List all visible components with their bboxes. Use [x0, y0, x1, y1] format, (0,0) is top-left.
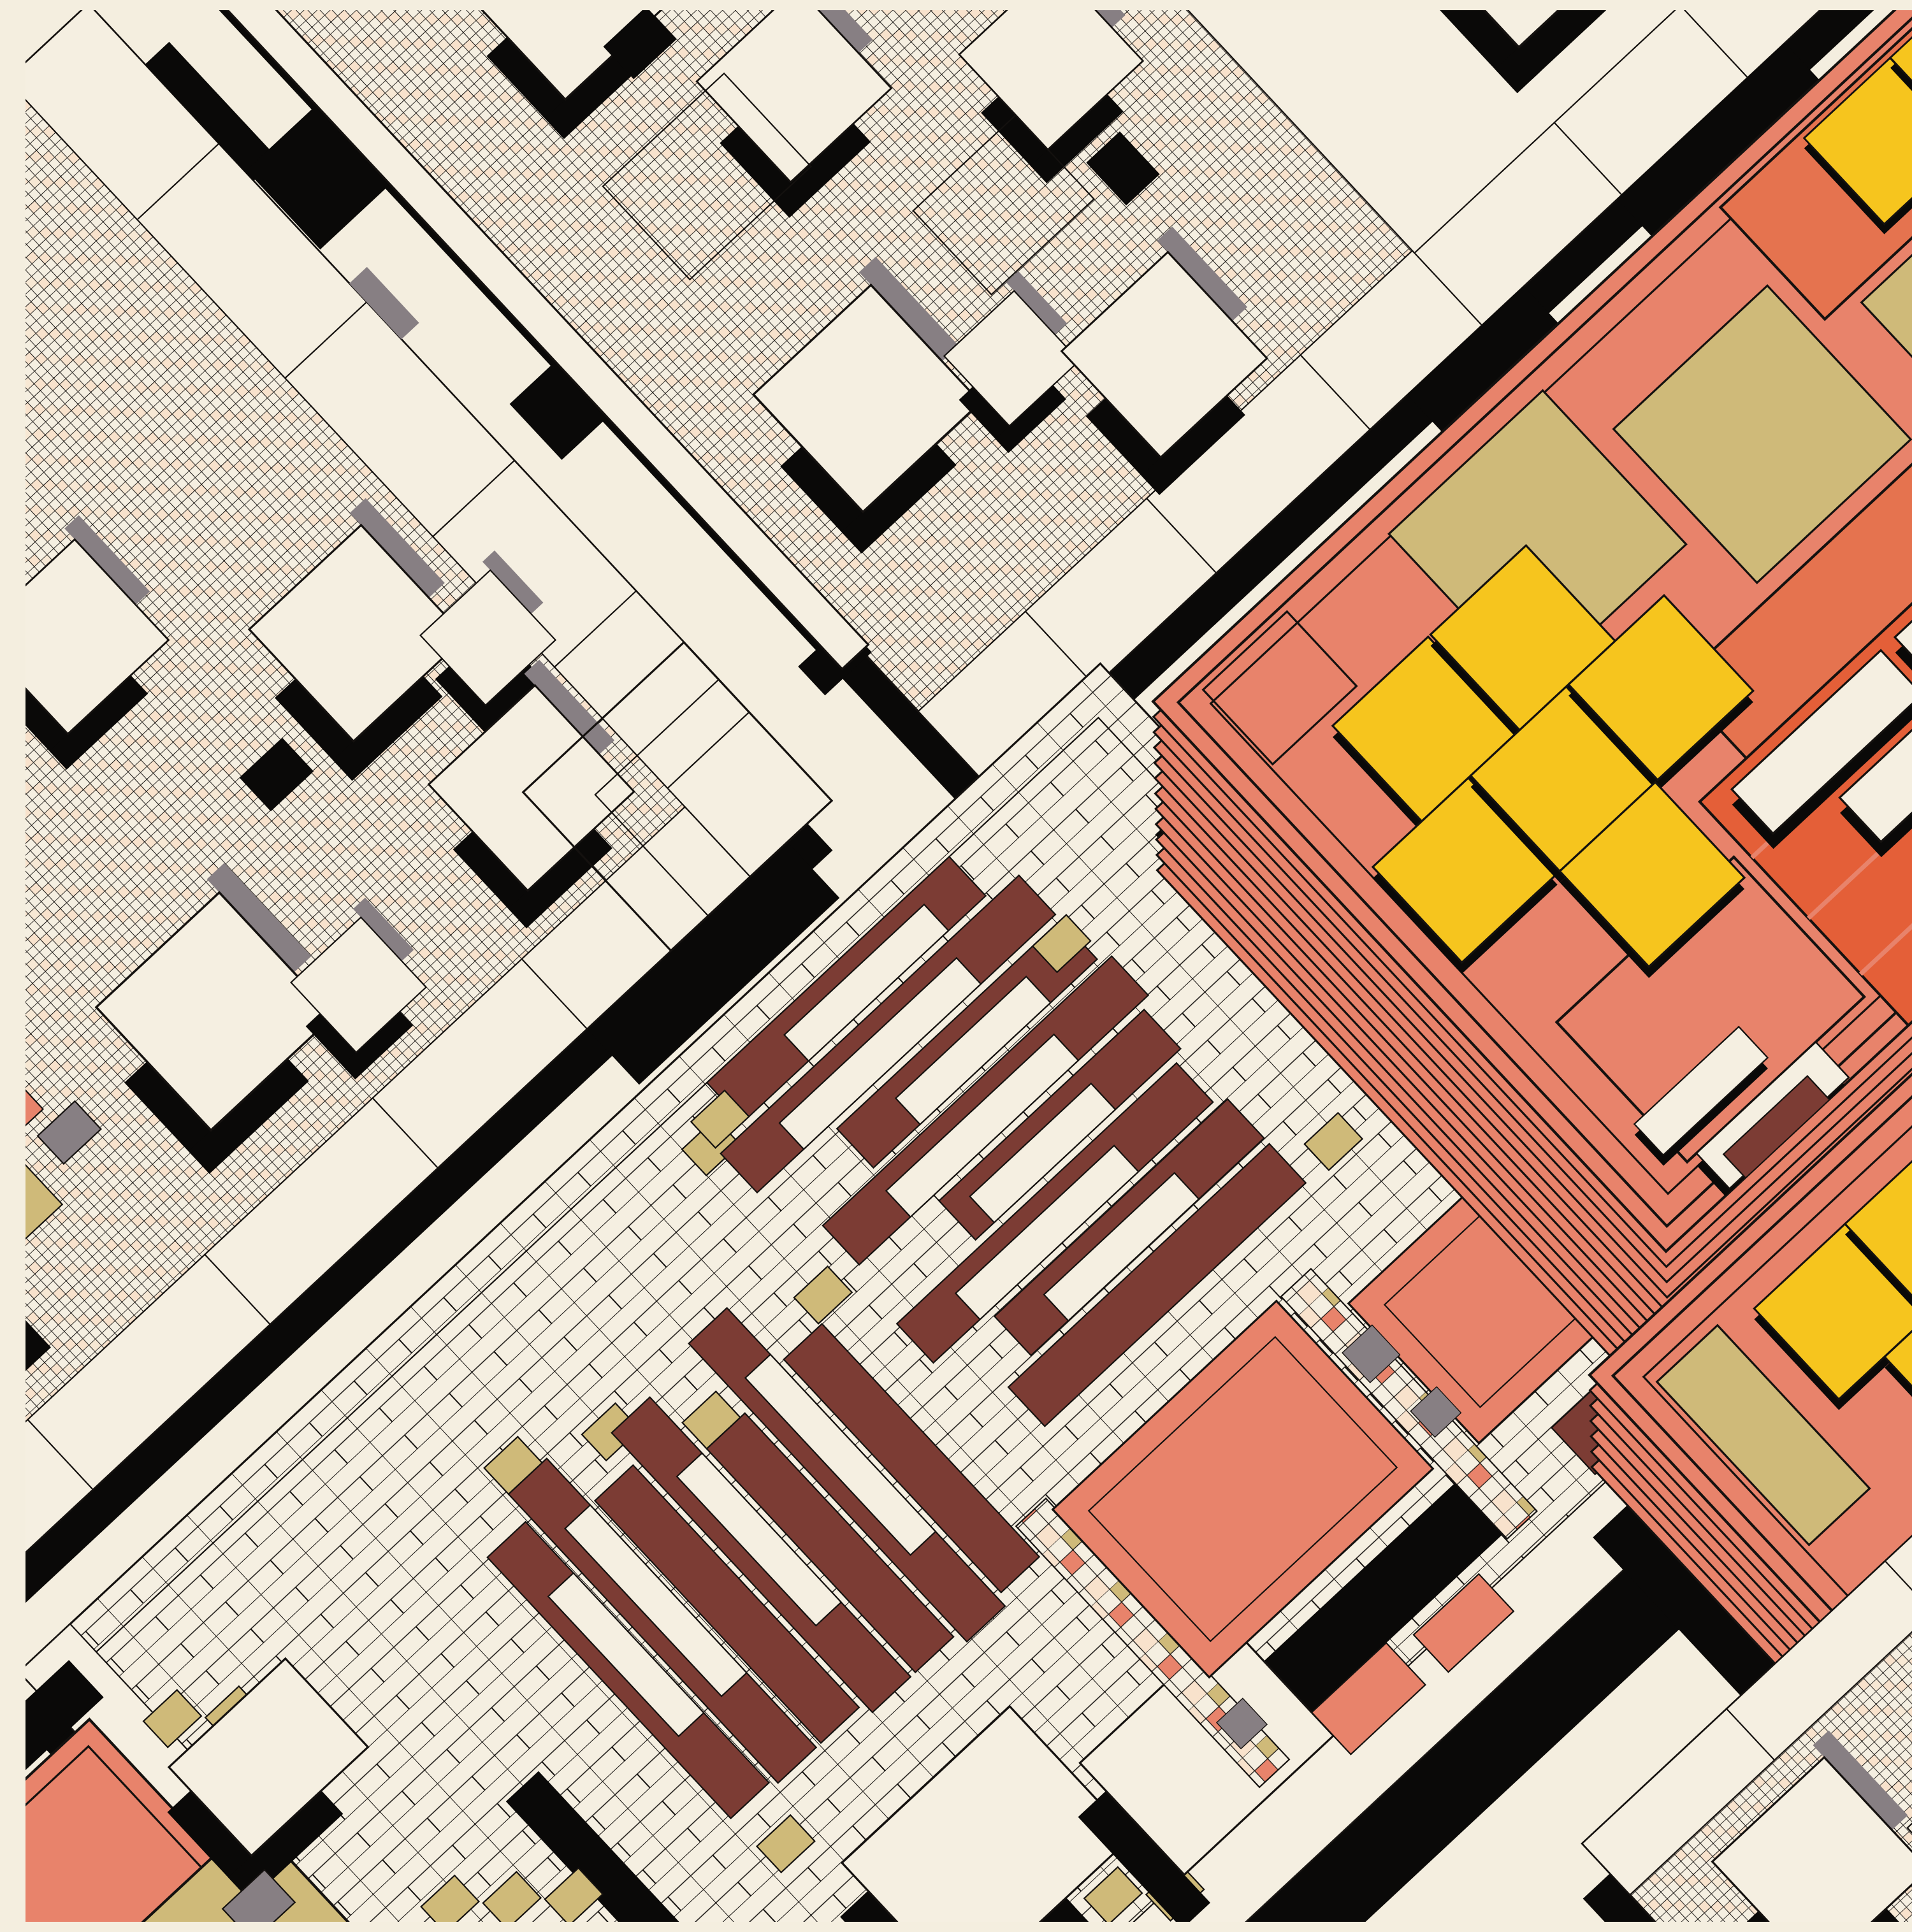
- isometric-world: [25, 10, 1912, 1922]
- artwork: Abstract generative isometric artwork: r…: [25, 10, 1912, 1922]
- artwork-canvas: [25, 10, 1912, 1922]
